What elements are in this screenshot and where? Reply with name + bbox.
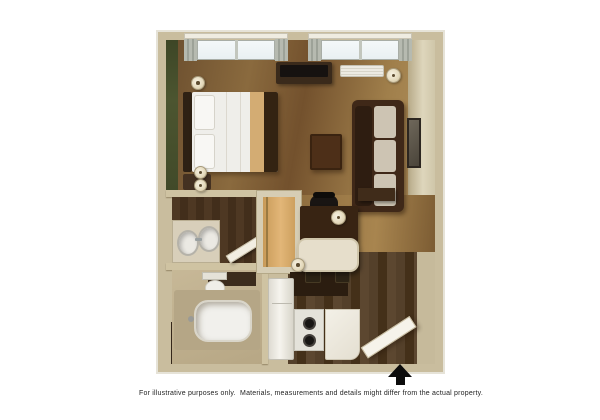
- wall-mirror: [407, 118, 421, 168]
- wall-sconce-icon: [194, 166, 207, 179]
- window-mullion: [235, 40, 238, 60]
- air-conditioner: [340, 65, 384, 77]
- curtain-icon: [399, 39, 412, 61]
- burner-icon: [303, 334, 316, 347]
- window-mullion: [359, 40, 362, 60]
- coffee-table: [310, 134, 342, 170]
- closet-rod: [266, 197, 268, 267]
- stove: [294, 309, 324, 351]
- pillow: [194, 95, 215, 130]
- tv-stand: [276, 62, 332, 84]
- wall-shelf: [358, 188, 395, 201]
- floor-lamp-icon: [386, 68, 401, 83]
- bed-headboard: [183, 92, 192, 172]
- north-arrow-icon: [387, 364, 413, 386]
- wall-sconce-icon: [191, 76, 205, 90]
- table-lamp-icon: [291, 258, 305, 272]
- toilet-tank: [202, 272, 227, 280]
- green-accent-wall: [166, 40, 178, 190]
- burner-icon: [303, 317, 316, 330]
- curtain-icon: [275, 39, 288, 61]
- window-right: [308, 33, 412, 62]
- bathtub: [194, 300, 252, 342]
- curtain-icon: [184, 39, 197, 61]
- tub-faucet-icon: [188, 316, 194, 322]
- floorplan-image: For illustrative purposes only. Material…: [0, 0, 600, 420]
- bed-footboard: [264, 92, 278, 172]
- curtain-icon: [308, 39, 321, 61]
- tv-icon: [280, 65, 328, 77]
- bed-runner: [250, 92, 264, 172]
- floorplan-outer-walls: [158, 32, 443, 372]
- north-arrow-stem: [396, 376, 405, 385]
- faucet-icon: [195, 238, 202, 241]
- duvet-fold: [240, 92, 241, 172]
- dining-table: [297, 238, 359, 272]
- vanity-counter: [172, 220, 220, 263]
- bed: [192, 92, 278, 172]
- window-valance: [184, 33, 288, 39]
- wall-sconce-icon: [194, 179, 207, 192]
- sink-icon: [177, 230, 199, 256]
- pillow: [194, 134, 215, 169]
- duvet-fold: [226, 92, 227, 172]
- disclaimer-caption: For illustrative purposes only. Material…: [0, 390, 600, 398]
- desk: [300, 206, 358, 242]
- desk-lamp-icon: [331, 210, 346, 225]
- window-valance: [308, 33, 412, 39]
- bedroom-vanity-wall: [166, 190, 262, 197]
- right-wall-lower: [417, 252, 435, 364]
- kitchen-counter: [325, 309, 360, 360]
- window-left: [184, 33, 288, 62]
- refrigerator: [268, 278, 294, 360]
- vanity-bathroom-wall: [166, 263, 262, 270]
